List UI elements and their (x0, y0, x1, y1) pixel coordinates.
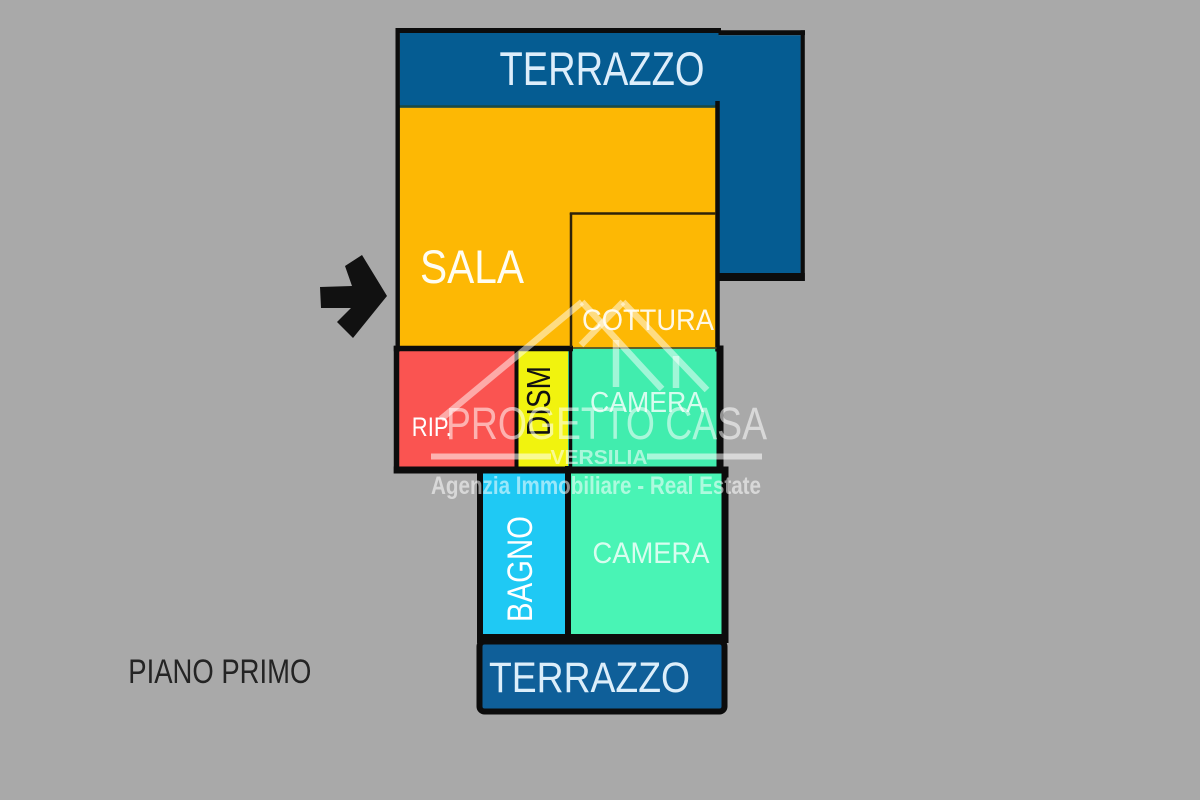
svg-text:CAMERA: CAMERA (593, 537, 710, 570)
svg-text:PIANO PRIMO: PIANO PRIMO (128, 653, 311, 691)
svg-text:SALA: SALA (420, 240, 525, 293)
svg-text:TERRAZZO: TERRAZZO (489, 654, 690, 702)
svg-text:PROGETTO CASA: PROGETTO CASA (446, 398, 767, 449)
svg-text:BAGNO: BAGNO (501, 516, 540, 622)
svg-text:Agenzia Immobiliare - Real Est: Agenzia Immobiliare - Real Estate (431, 472, 761, 500)
svg-text:VERSILIA: VERSILIA (551, 447, 648, 469)
svg-text:TERRAZZO: TERRAZZO (500, 42, 705, 95)
